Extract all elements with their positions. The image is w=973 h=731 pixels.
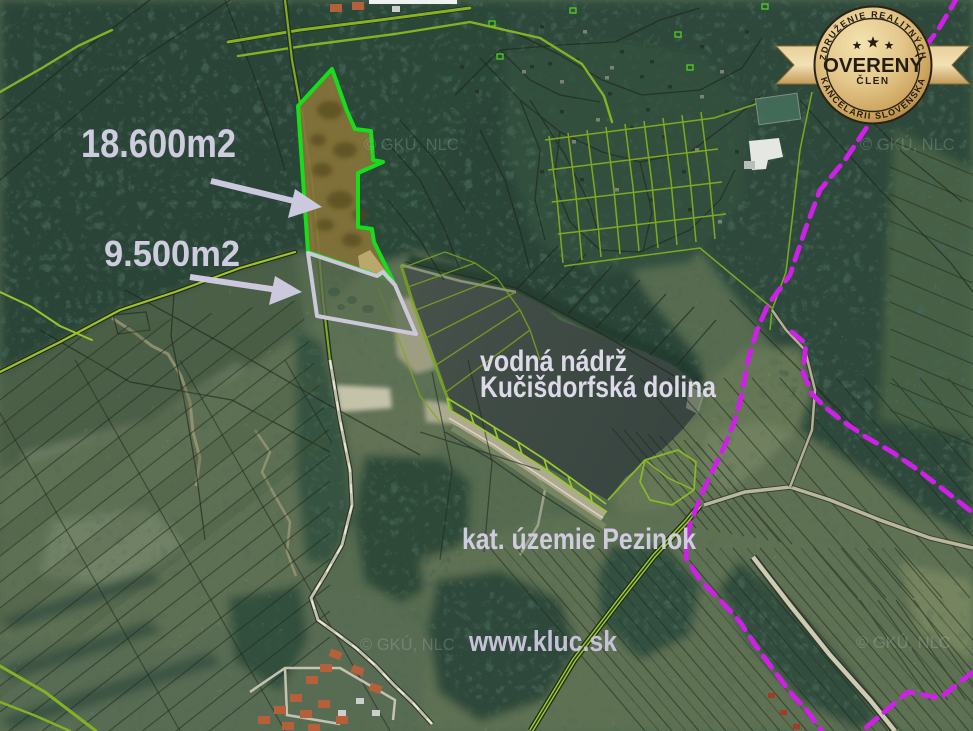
svg-text:© GKÚ, NLC: © GKÚ, NLC (856, 633, 951, 652)
svg-text:OVERENÝ: OVERENÝ (823, 53, 924, 77)
svg-text:© GKÚ, NLC: © GKÚ, NLC (860, 135, 955, 154)
svg-text:Kučišdorfská dolina: Kučišdorfská dolina (480, 371, 716, 404)
svg-text:kat. územie Pezinok: kat. územie Pezinok (462, 523, 696, 556)
svg-text:18.600m2: 18.600m2 (81, 122, 236, 166)
svg-text:© GKÚ, NLC: © GKÚ, NLC (364, 135, 459, 154)
svg-text:ČLEN: ČLEN (856, 74, 889, 87)
svg-text:9.500m2: 9.500m2 (104, 233, 240, 274)
svg-text:www.kluc.sk: www.kluc.sk (468, 626, 618, 658)
svg-text:© GKÚ, NLC: © GKÚ, NLC (360, 635, 455, 654)
